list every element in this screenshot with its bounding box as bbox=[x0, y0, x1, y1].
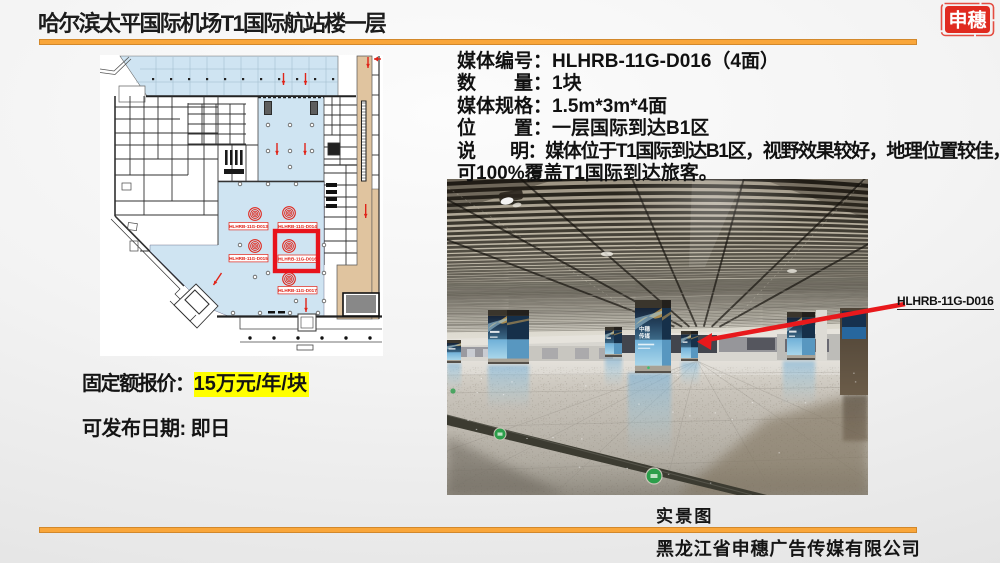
svg-text:传媒: 传媒 bbox=[638, 332, 651, 340]
svg-text:HLHRB-11G-D015: HLHRB-11G-D015 bbox=[229, 256, 268, 261]
svg-text:HLHRB-11G-D017: HLHRB-11G-D017 bbox=[278, 288, 317, 293]
svg-text:申穗: 申穗 bbox=[948, 9, 986, 32]
svg-text:HLHRB-11G-D016: HLHRB-11G-D016 bbox=[278, 257, 317, 262]
svg-text:HLHRB-11G-D014: HLHRB-11G-D014 bbox=[278, 224, 317, 229]
svg-text:HLHRB-11G-D013: HLHRB-11G-D013 bbox=[229, 224, 268, 229]
svg-text:中穗: 中穗 bbox=[639, 325, 651, 333]
